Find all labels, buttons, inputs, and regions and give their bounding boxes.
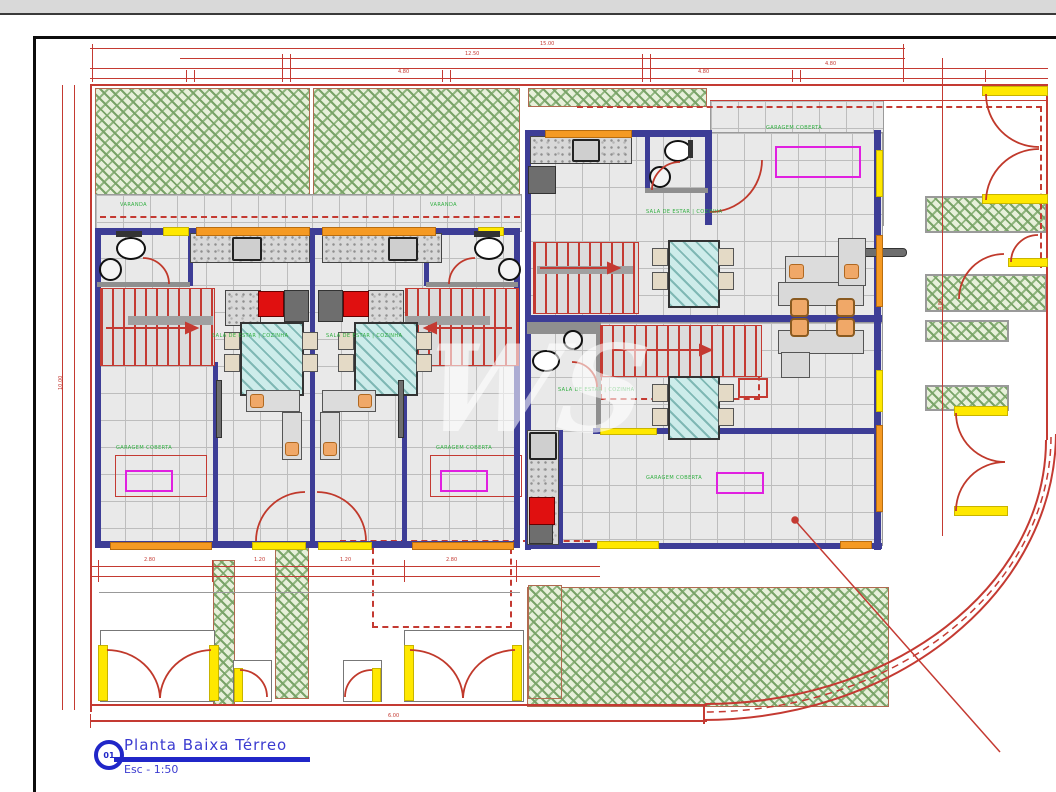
stairs-unit1-landing [128,316,213,325]
dim-tick [98,560,99,582]
chair [718,272,734,290]
stove-counter-unit1 [225,290,261,326]
dim-tick [404,560,405,582]
drawing-scale: Esc - 1:50 [124,763,178,776]
porch-dash [510,548,512,628]
room-label: VARANDA [430,202,457,208]
stove-unit1 [258,291,284,317]
room-label: GARAGEM COBERTA [116,445,172,451]
dim-label: 1.20 [340,557,351,563]
porch-threshold-2 [954,506,1008,516]
wall-bath1-gray [97,282,190,287]
reardoor2-jamb [372,668,381,702]
chair [224,354,240,372]
wall-rb-bottom [525,543,882,549]
tv-unit2 [398,380,404,438]
dim-tick [290,54,291,82]
dim-tick [650,54,651,82]
dim-tick [442,70,443,82]
sheet-border-vertical [33,36,36,792]
room-label: GARAGEM COBERTA [646,475,702,481]
garden-front-mid [313,88,520,196]
window-rb-right-2 [876,425,883,512]
drawing-title: Planta Baixa Térreo [124,736,287,754]
dim-line [90,48,905,49]
sheet-border-horizontal [33,36,1056,39]
office-chair [836,318,855,337]
porch-threshold-1 [954,406,1008,416]
sink-rb-upper [572,139,600,162]
planter-right-3 [925,320,1009,342]
label-box-rb-garage [716,472,764,494]
dim-label: 15.00 [540,41,554,47]
dim-tick [642,54,643,82]
dim-label: 2.80 [446,557,457,563]
garden-back-large [527,587,889,707]
label-box-garage2 [440,470,488,492]
wall-rb-bath3-gray [645,188,708,193]
floor-plan-sheet: SALA DE ESTAR | COZINHA SALA DE ESTAR | … [0,0,1056,792]
stairs-rb-upper-landing [537,266,633,274]
porch-dash-bottom [372,626,512,628]
chair [718,408,734,426]
dim-tick [194,70,195,82]
chair [718,384,734,402]
watermark: WS [417,330,655,450]
dim-label: 4.80 [398,69,409,75]
top-strip [0,0,1056,13]
dim-tick [450,70,451,82]
porch-dash [372,548,374,628]
dim-label: 4.80 [825,61,836,67]
dim-tick [985,70,986,82]
garage-door-unit2 [412,542,514,550]
gate2-jamb-right [512,645,522,701]
room-label: VARANDA [120,202,147,208]
chair [652,248,668,266]
room-label: SALA DE ESTAR | COZINHA [326,333,402,339]
dining-table-rb-lower [668,376,720,440]
ped-door-threshold [1008,258,1048,267]
stove-counter-unit2 [368,290,404,326]
room-label: GARAGEM COBERTA [766,125,822,131]
entry-door-unit2 [318,542,372,550]
dim-line [90,68,1048,69]
chair [416,332,432,350]
dim-tick [703,704,705,724]
window-rb-bottom [840,541,872,549]
dim-line-left [62,85,63,710]
basin-2 [498,258,521,281]
dim-tick [282,54,283,82]
stove-unit2 [343,291,369,317]
window-unit2 [322,227,436,236]
garden-front-left [95,88,310,196]
court-projection-side [1040,106,1042,268]
cushion [323,442,337,456]
wall-party [310,228,315,548]
range-unit1 [284,290,309,322]
dim-tick [212,560,213,582]
toilet-tank-3 [688,140,693,158]
driveway-line [99,592,520,593]
dim-tick [800,70,801,82]
dim-label: 1.20 [254,557,265,563]
dim-tick [792,70,793,82]
chair [302,332,318,350]
dim-line [180,58,905,59]
garden-strip-back-2 [275,540,309,699]
lot-boundary-left [90,84,92,712]
dim-label: 2.80 [144,557,155,563]
sheet-number-badge: 01 [94,740,124,770]
chair [718,248,734,266]
oven-rb-lower [529,524,553,544]
toilet-2 [474,237,504,260]
wall-bath2-gray [426,282,518,287]
fridge-rb-upper [528,166,556,194]
tv-unit1 [216,380,222,438]
label-box-garage1 [125,470,173,492]
red-annotation-box [738,378,768,398]
garage-door-unit1 [110,542,212,550]
basin-1 [99,258,122,281]
sink-unit2 [388,237,418,261]
dim-label: 6.00 [388,713,399,719]
dim-tick [90,714,91,728]
room-label: SALA DE ESTAR | COZINHA [212,333,288,339]
door-threshold-unit1 [163,227,189,236]
dim-line-right [942,58,943,536]
toilet-1 [116,237,146,260]
stairs-rb-upper [533,242,639,314]
garden-strip-back-3 [528,585,562,699]
window-rb-top [545,130,632,138]
dim-label: 4.80 [698,69,709,75]
gate1-jamb-right [209,645,219,701]
gate-top-right-jamb-b [982,194,1048,204]
cushion [789,264,804,279]
chair [652,272,668,290]
kitchen-counter-unit2 [322,233,442,263]
dim-label: 12.50 [465,51,479,57]
gate1-jamb-left [98,645,108,701]
lot-boundary-bottom [90,704,707,706]
dining-table-rb-upper [668,240,720,308]
road-edge-bottom [90,720,707,722]
office-chair [790,298,809,317]
dim-line-mid [90,576,600,577]
chair [302,354,318,372]
cushion [358,394,372,408]
window-rb-right-1 [876,235,883,307]
range-unit2 [318,290,343,322]
gate2-jamb-left [404,645,414,701]
window-rb-right-3 [876,150,883,197]
desk-rb-lower-return [781,352,810,378]
court-projection [577,106,1042,108]
window-rb-right-4 [876,370,883,412]
chair [652,408,668,426]
dim-label: 10.00 [58,376,64,390]
upper-floor-projection [100,216,520,218]
dim-tick [308,560,309,582]
office-chair [836,298,855,317]
stove-rb-lower [529,497,555,525]
dim-line-left [74,85,75,710]
dim-tick [903,44,904,82]
gate-top-right-jamb-a [982,86,1048,96]
dim-tick [92,44,93,82]
cushion [285,442,299,456]
gate-bay-2 [404,630,524,702]
garden-strip-top-right [528,88,707,107]
room-label: SALA DE ESTAR | COZINHA [646,209,722,215]
cushion [844,264,859,279]
dim-tick [516,560,517,582]
chair [338,354,354,372]
entry-door-unit1 [252,542,306,550]
dim-line-mid [90,566,600,567]
dim-label: 4.80 [938,299,944,310]
lot-boundary-top [90,84,1048,86]
court-edge [710,100,1046,101]
title-underline [114,757,310,762]
reardoor1-jamb [234,668,243,702]
stairs-unit1 [100,288,215,366]
label-box-court [775,146,861,178]
window-unit1 [196,227,310,236]
office-chair [790,318,809,337]
basin-3 [649,166,671,188]
sink-unit1 [232,237,262,261]
door-rb-bottom [597,541,659,549]
top-strip-line [0,13,1056,15]
chair [652,384,668,402]
dim-line [90,78,1048,79]
cushion [250,394,264,408]
dim-tick [186,70,187,82]
gate-bay-1 [100,630,215,702]
